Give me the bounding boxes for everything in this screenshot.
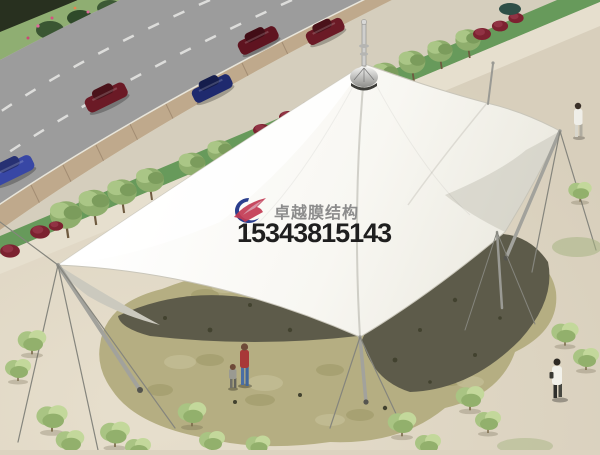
dark-bush	[499, 3, 521, 15]
architectural-rendering	[0, 0, 600, 450]
grass-patch	[552, 237, 600, 257]
rendering-canvas	[0, 0, 600, 450]
